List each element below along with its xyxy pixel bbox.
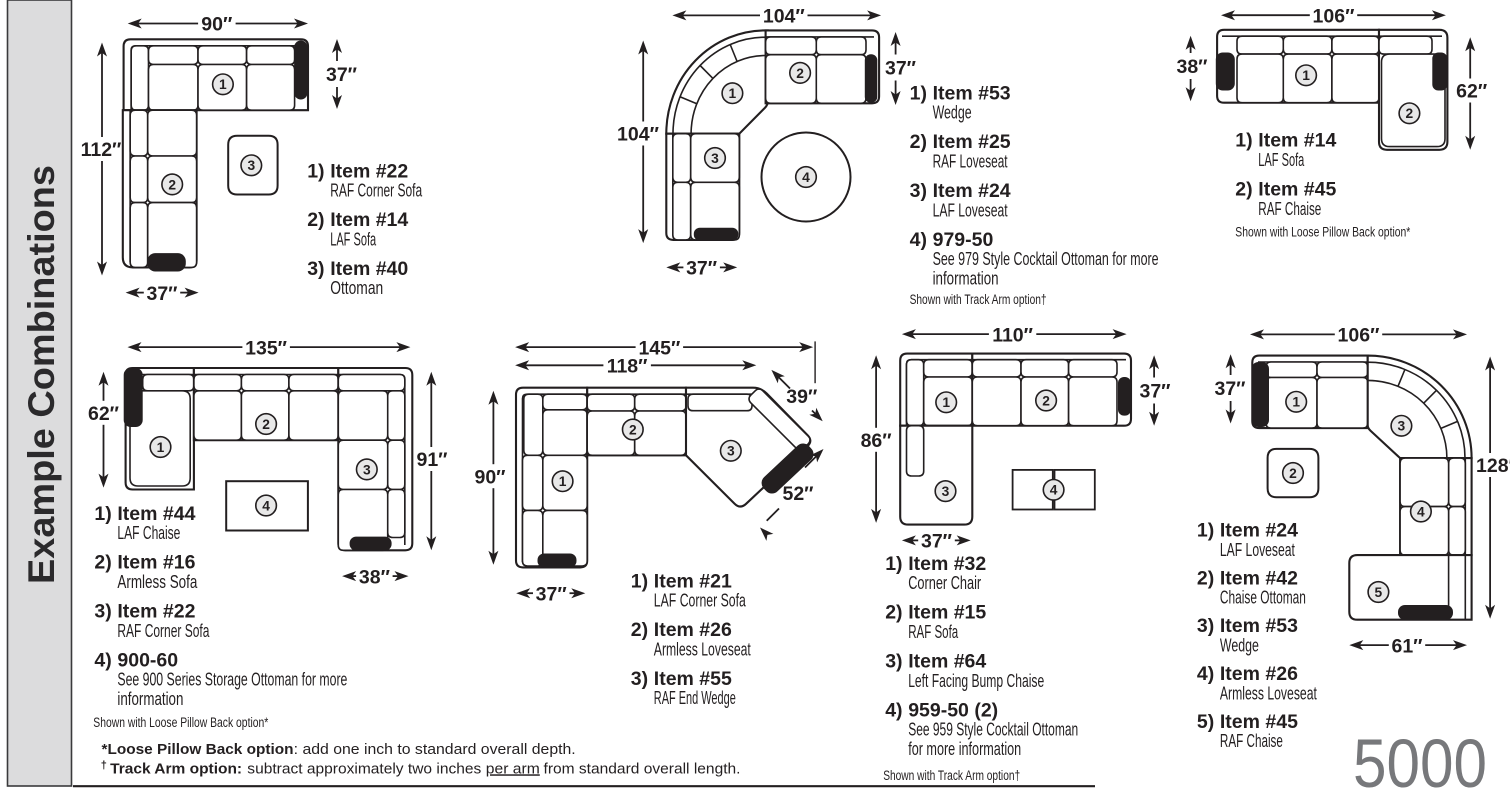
svg-text:86″: 86″ — [861, 430, 892, 452]
svg-text:37″: 37″ — [1139, 381, 1170, 403]
svg-text:1): 1) — [910, 82, 927, 104]
svg-text:Item #24: Item #24 — [933, 180, 1011, 202]
svg-text:104″: 104″ — [763, 6, 805, 28]
svg-text:subtract approximately two inc: subtract approximately two inches — [247, 761, 481, 777]
svg-text:900-60: 900-60 — [117, 649, 178, 671]
svg-text:2): 2) — [94, 552, 111, 574]
svg-text:110″: 110″ — [992, 324, 1033, 346]
svg-text:2: 2 — [168, 177, 176, 192]
svg-text:118″: 118″ — [607, 356, 648, 378]
svg-text:2): 2) — [307, 209, 324, 231]
svg-text:3: 3 — [727, 444, 735, 459]
svg-text:2): 2) — [1235, 179, 1252, 201]
svg-text:1: 1 — [942, 395, 950, 410]
svg-text:3): 3) — [910, 180, 927, 202]
svg-text:37″: 37″ — [885, 58, 916, 80]
svg-text:RAF Corner Sofa: RAF Corner Sofa — [330, 181, 423, 201]
svg-text:Track Arm option:: Track Arm option: — [110, 761, 242, 777]
svg-text:Ottoman: Ottoman — [330, 278, 383, 298]
svg-text:RAF Corner Sofa: RAF Corner Sofa — [117, 621, 210, 641]
svg-text:2: 2 — [1406, 106, 1414, 121]
svg-text:†: † — [101, 760, 107, 772]
svg-text:2): 2) — [885, 602, 902, 624]
svg-text:Example Combinations: Example Combinations — [21, 165, 62, 584]
svg-text:Left Facing Bump Chaise: Left Facing Bump Chaise — [908, 671, 1044, 691]
svg-text:38″: 38″ — [359, 566, 390, 588]
svg-text:Item #44: Item #44 — [117, 503, 195, 525]
svg-text:Item #14: Item #14 — [1258, 130, 1336, 152]
svg-text:2): 2) — [631, 619, 648, 641]
svg-text:Item #22: Item #22 — [330, 160, 408, 182]
svg-text:2: 2 — [262, 417, 270, 432]
svg-text:39″: 39″ — [786, 386, 817, 408]
svg-text:RAF Loveseat: RAF Loveseat — [933, 152, 1008, 172]
svg-text:2): 2) — [1197, 567, 1214, 589]
svg-text:106″: 106″ — [1313, 5, 1355, 27]
svg-text:1): 1) — [631, 570, 648, 592]
svg-text:3): 3) — [1197, 615, 1214, 637]
svg-text:Wedge: Wedge — [933, 103, 972, 123]
svg-text:Shown with Track Arm option†: Shown with Track Arm option† — [883, 768, 1020, 783]
svg-text:Item #32: Item #32 — [908, 553, 986, 575]
svg-text:Item #25: Item #25 — [933, 131, 1011, 153]
svg-text:5): 5) — [1197, 711, 1214, 733]
svg-text:Item #14: Item #14 — [330, 209, 408, 231]
svg-text:1: 1 — [219, 77, 227, 92]
svg-text:37″: 37″ — [146, 283, 177, 305]
svg-text:LAF Corner Sofa: LAF Corner Sofa — [654, 591, 747, 611]
svg-text:112″: 112″ — [81, 139, 122, 161]
svg-text:4: 4 — [802, 170, 810, 185]
svg-text:for more information: for more information — [908, 739, 1021, 759]
svg-text:per arm: per arm — [486, 761, 540, 777]
svg-text:3): 3) — [94, 601, 111, 623]
svg-text:1: 1 — [1292, 395, 1300, 410]
svg-text:37″: 37″ — [536, 583, 567, 605]
svg-text:Item #45: Item #45 — [1258, 179, 1336, 201]
svg-text:information: information — [117, 689, 183, 709]
svg-text:LAF Chaise: LAF Chaise — [117, 523, 180, 543]
svg-text:5000: 5000 — [1353, 725, 1487, 790]
svg-text:37″: 37″ — [1214, 378, 1245, 400]
svg-text:Shown with Loose Pillow Back o: Shown with Loose Pillow Back option* — [93, 715, 269, 730]
svg-text:Armless Sofa: Armless Sofa — [117, 572, 198, 592]
svg-text:Item #22: Item #22 — [117, 601, 195, 623]
svg-text:4): 4) — [910, 229, 927, 251]
svg-text:4): 4) — [885, 699, 902, 721]
svg-text:See 900 Series Storage Ottoman: See 900 Series Storage Ottoman for more — [117, 670, 347, 690]
svg-text:Item #21: Item #21 — [654, 570, 732, 592]
svg-text:LAF Sofa: LAF Sofa — [1258, 150, 1305, 170]
svg-text:5: 5 — [1375, 585, 1383, 600]
svg-text:Item #16: Item #16 — [117, 552, 195, 574]
svg-text:1: 1 — [559, 474, 567, 489]
svg-text:Wedge: Wedge — [1220, 636, 1259, 656]
svg-text:Shown with Loose Pillow Back o: Shown with Loose Pillow Back option* — [1235, 224, 1411, 239]
svg-text:3): 3) — [885, 651, 902, 673]
svg-text:Item #53: Item #53 — [1220, 615, 1298, 637]
svg-text:Item #53: Item #53 — [933, 82, 1011, 104]
svg-text:37″: 37″ — [686, 258, 717, 280]
svg-text:RAF Chaise: RAF Chaise — [1220, 731, 1283, 751]
svg-text:4: 4 — [1050, 483, 1058, 498]
svg-text:52″: 52″ — [782, 483, 813, 505]
svg-text:1): 1) — [885, 553, 902, 575]
svg-text:2: 2 — [1042, 393, 1050, 408]
svg-text:1): 1) — [307, 160, 324, 182]
svg-text:4: 4 — [1417, 504, 1425, 519]
svg-text:104″: 104″ — [617, 124, 659, 146]
svg-text:2: 2 — [1289, 466, 1297, 481]
svg-text:Corner Chair: Corner Chair — [908, 573, 981, 593]
svg-text:979-50: 979-50 — [933, 229, 994, 251]
svg-text:RAF End Wedge: RAF End Wedge — [654, 688, 736, 708]
svg-text:Item #64: Item #64 — [908, 651, 986, 673]
svg-text:90″: 90″ — [474, 466, 505, 488]
svg-text:1: 1 — [729, 86, 737, 101]
svg-text:RAF Chaise: RAF Chaise — [1258, 199, 1321, 219]
svg-text:3: 3 — [247, 158, 255, 173]
svg-text:See 979 Style Cocktail Ottoman: See 979 Style Cocktail Ottoman for more — [933, 249, 1159, 269]
svg-text:Item #55: Item #55 — [654, 668, 732, 690]
svg-text:1: 1 — [157, 440, 165, 455]
svg-text:2): 2) — [910, 131, 927, 153]
svg-text:37″: 37″ — [326, 64, 357, 86]
svg-text:Shown with Track Arm option†: Shown with Track Arm option† — [910, 292, 1047, 307]
svg-text:Item #26: Item #26 — [1220, 663, 1298, 685]
svg-text:37″: 37″ — [921, 531, 952, 553]
svg-text:62″: 62″ — [1456, 81, 1487, 103]
svg-text:Item #26: Item #26 — [654, 619, 732, 641]
svg-text:38″: 38″ — [1176, 56, 1207, 78]
svg-text:See 959 Style Cocktail Ottoman: See 959 Style Cocktail Ottoman — [908, 720, 1078, 740]
svg-text:4): 4) — [94, 649, 111, 671]
svg-text:3): 3) — [307, 258, 324, 280]
svg-text:3: 3 — [942, 484, 950, 499]
svg-text:Item #40: Item #40 — [330, 258, 408, 280]
svg-text:4: 4 — [262, 498, 270, 513]
svg-text:1: 1 — [1302, 68, 1310, 83]
svg-text:61″: 61″ — [1391, 635, 1422, 657]
svg-text:Item #15: Item #15 — [908, 602, 986, 624]
svg-text:LAF Sofa: LAF Sofa — [330, 229, 377, 249]
svg-text:1): 1) — [94, 503, 111, 525]
svg-text:Item #42: Item #42 — [1220, 567, 1298, 589]
svg-text:information: information — [933, 268, 999, 288]
svg-text:2: 2 — [796, 66, 804, 81]
svg-text:3: 3 — [363, 462, 371, 477]
svg-text:959-50 (2): 959-50 (2) — [908, 699, 998, 721]
svg-text:Item #45: Item #45 — [1220, 711, 1298, 733]
svg-text:1): 1) — [1197, 520, 1214, 542]
svg-text:128″: 128″ — [1476, 455, 1510, 477]
svg-text:106″: 106″ — [1338, 325, 1380, 347]
svg-text:62″: 62″ — [88, 403, 119, 425]
svg-text:: add one inch to standard ove: : add one inch to standard overall depth… — [294, 742, 576, 758]
svg-text:Armless Loveseat: Armless Loveseat — [654, 639, 751, 659]
svg-text:LAF Loveseat: LAF Loveseat — [1220, 540, 1295, 560]
svg-text:1): 1) — [1235, 130, 1252, 152]
svg-text:from standard overall length.: from standard overall length. — [544, 761, 741, 777]
svg-text:91″: 91″ — [416, 449, 447, 471]
svg-text:3: 3 — [711, 151, 719, 166]
svg-text:Chaise Ottoman: Chaise Ottoman — [1220, 588, 1306, 608]
svg-text:Armless Loveseat: Armless Loveseat — [1220, 683, 1317, 703]
svg-text:4): 4) — [1197, 663, 1214, 685]
svg-text:Item #24: Item #24 — [1220, 520, 1298, 542]
svg-text:*Loose Pillow Back option: *Loose Pillow Back option — [102, 742, 294, 758]
svg-text:3): 3) — [631, 668, 648, 690]
svg-text:135″: 135″ — [245, 337, 287, 359]
svg-text:3: 3 — [1398, 419, 1406, 434]
svg-text:2: 2 — [629, 422, 637, 437]
svg-text:LAF Loveseat: LAF Loveseat — [933, 200, 1008, 220]
svg-text:90″: 90″ — [201, 14, 232, 36]
svg-text:RAF Sofa: RAF Sofa — [908, 622, 959, 642]
